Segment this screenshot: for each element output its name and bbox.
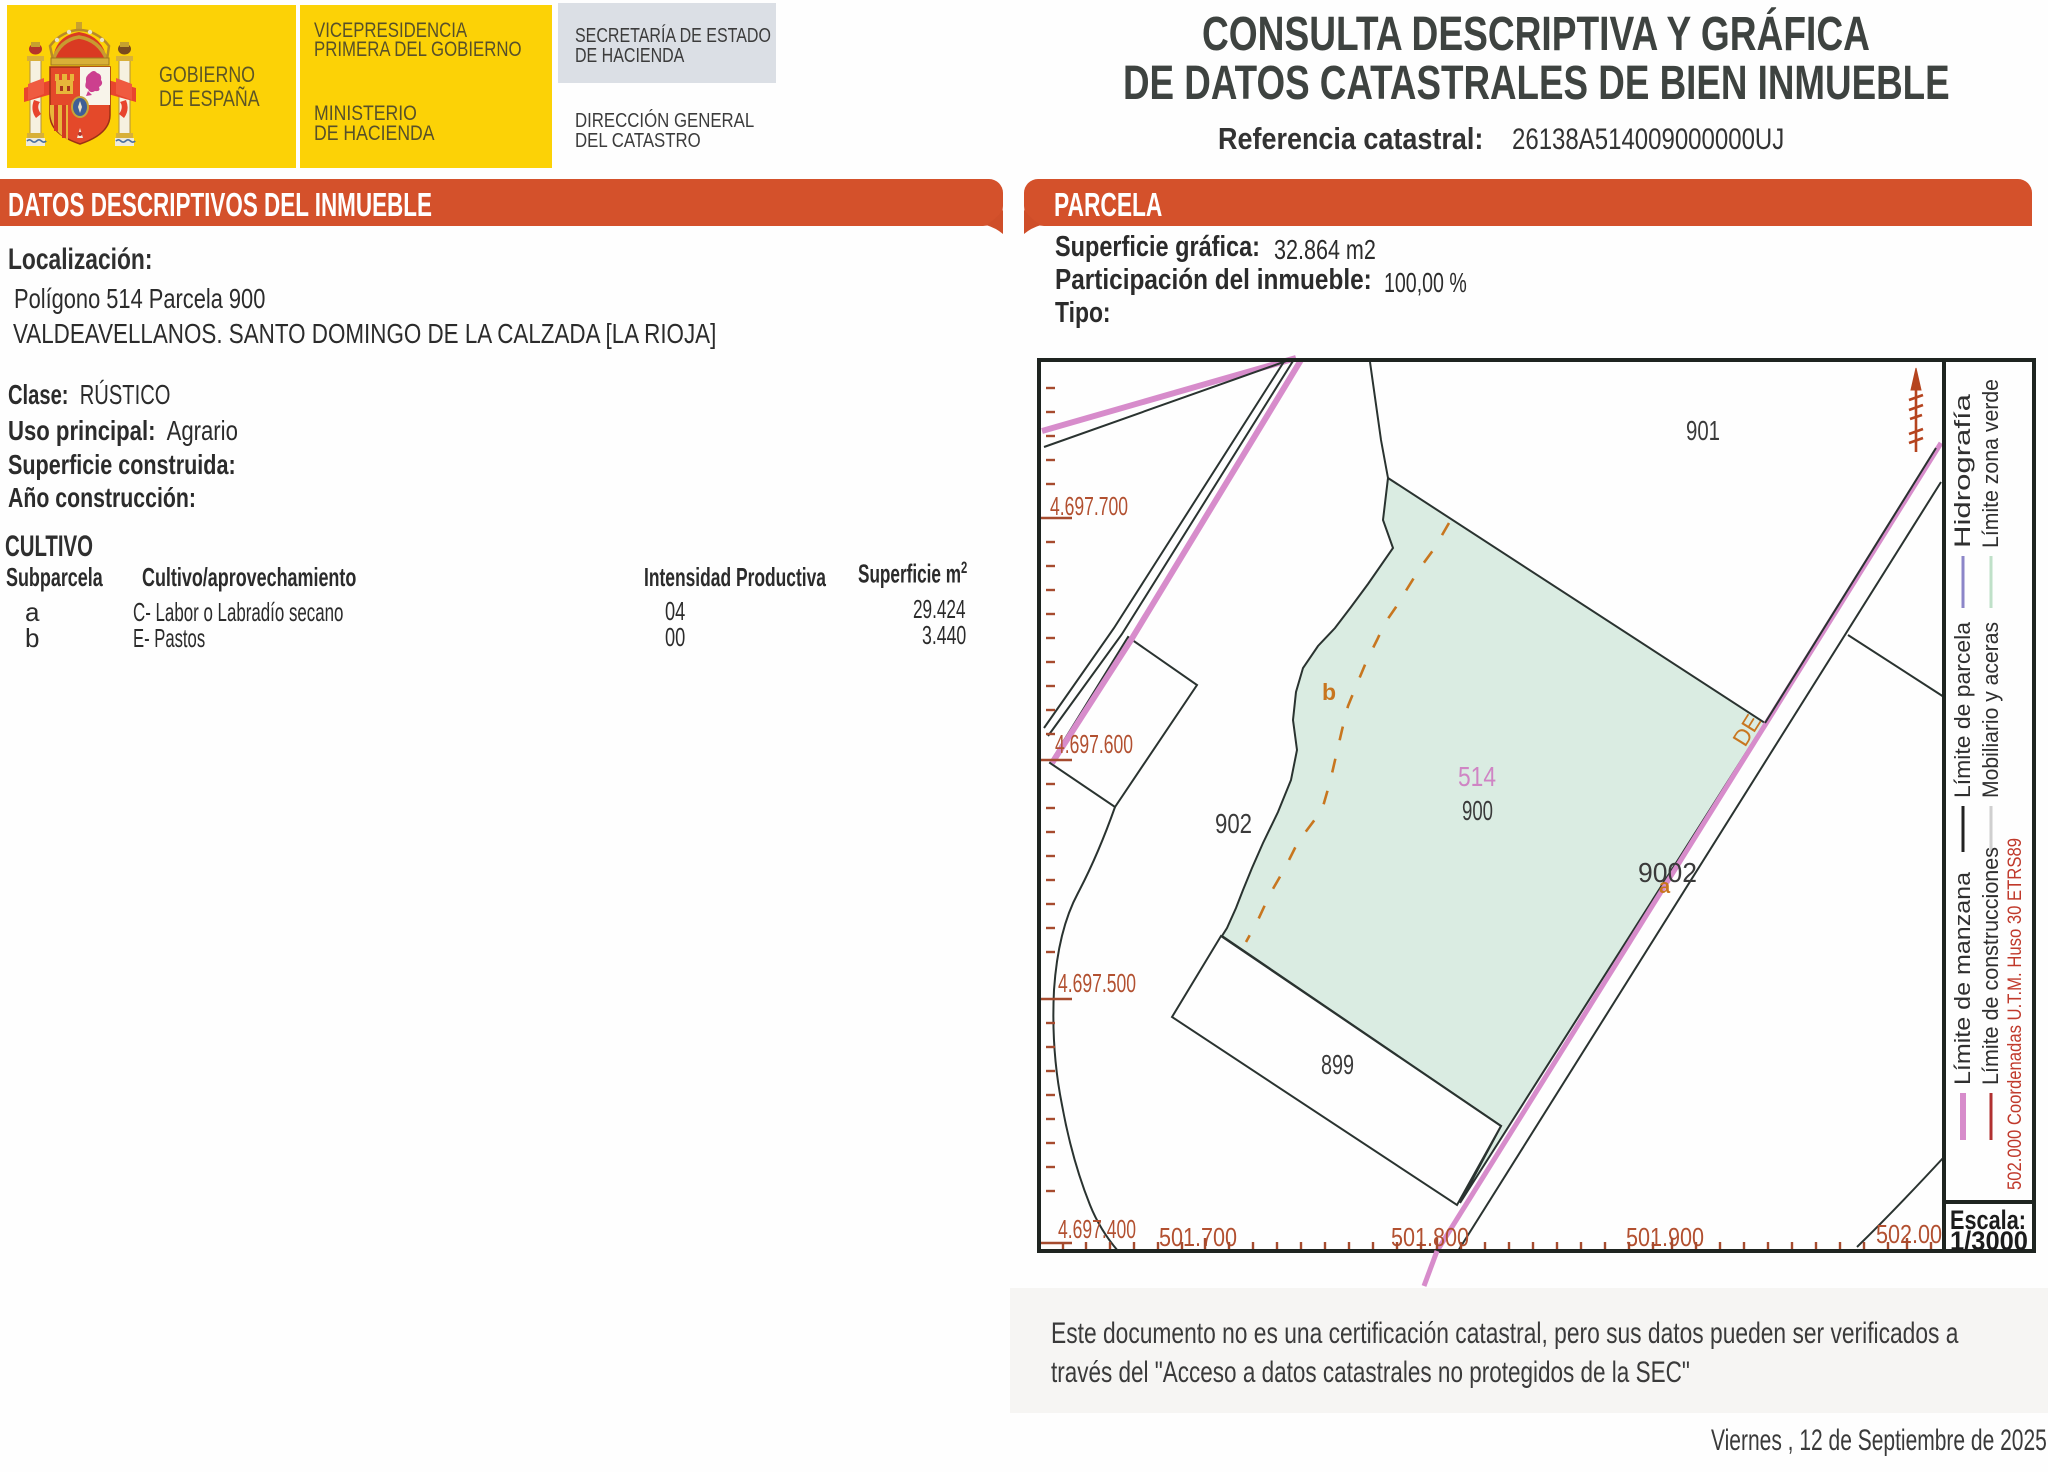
svg-text:4.697.700: 4.697.700 (1050, 491, 1128, 521)
svg-text:899: 899 (1321, 1049, 1354, 1080)
svg-text:501.900: 501.900 (1626, 1222, 1704, 1252)
svg-text:b: b (1322, 679, 1336, 705)
svg-text:Límite de manzana: Límite de manzana (1950, 871, 1975, 1085)
svg-text:4.697.500: 4.697.500 (1058, 968, 1136, 998)
svg-text:514: 514 (1458, 761, 1496, 792)
svg-text:502.000 Coordenadas U.T.M. Hus: 502.000 Coordenadas U.T.M. Huso 30 ETRS8… (2005, 838, 2026, 1190)
svg-text:Mobiliario y aceras: Mobiliario y aceras (1978, 622, 2003, 798)
svg-text:Límite de construcciones: Límite de construcciones (1978, 847, 2003, 1085)
svg-text:Límite zona verde: Límite zona verde (1978, 379, 2003, 548)
svg-text:900: 900 (1462, 795, 1493, 826)
svg-text:4.697.600: 4.697.600 (1055, 729, 1133, 759)
svg-text:901: 901 (1686, 415, 1720, 446)
svg-text:Hidrografía: Hidrografía (1950, 393, 1975, 548)
svg-text:4.697.400: 4.697.400 (1058, 1214, 1136, 1244)
svg-text:9002: 9002 (1638, 857, 1697, 888)
svg-text:501.800: 501.800 (1391, 1222, 1469, 1252)
svg-text:1/3000: 1/3000 (1950, 1226, 2028, 1256)
svg-text:902: 902 (1215, 808, 1252, 839)
svg-text:Límite de parcela: Límite de parcela (1950, 621, 1975, 798)
svg-text:501.700: 501.700 (1159, 1222, 1237, 1252)
